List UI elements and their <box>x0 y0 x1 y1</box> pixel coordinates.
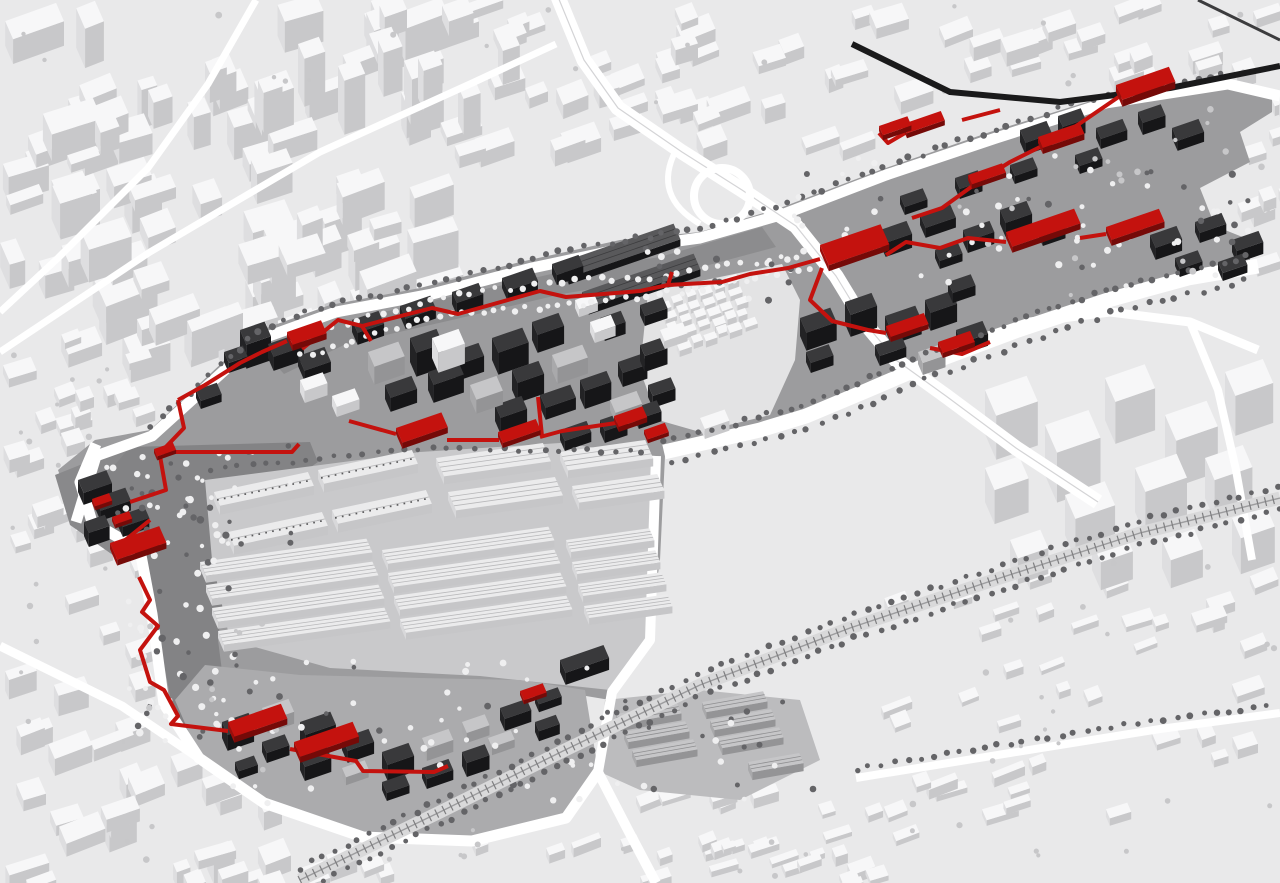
masterplan-rendering <box>0 0 1280 883</box>
masterplan-svg <box>0 0 1280 883</box>
